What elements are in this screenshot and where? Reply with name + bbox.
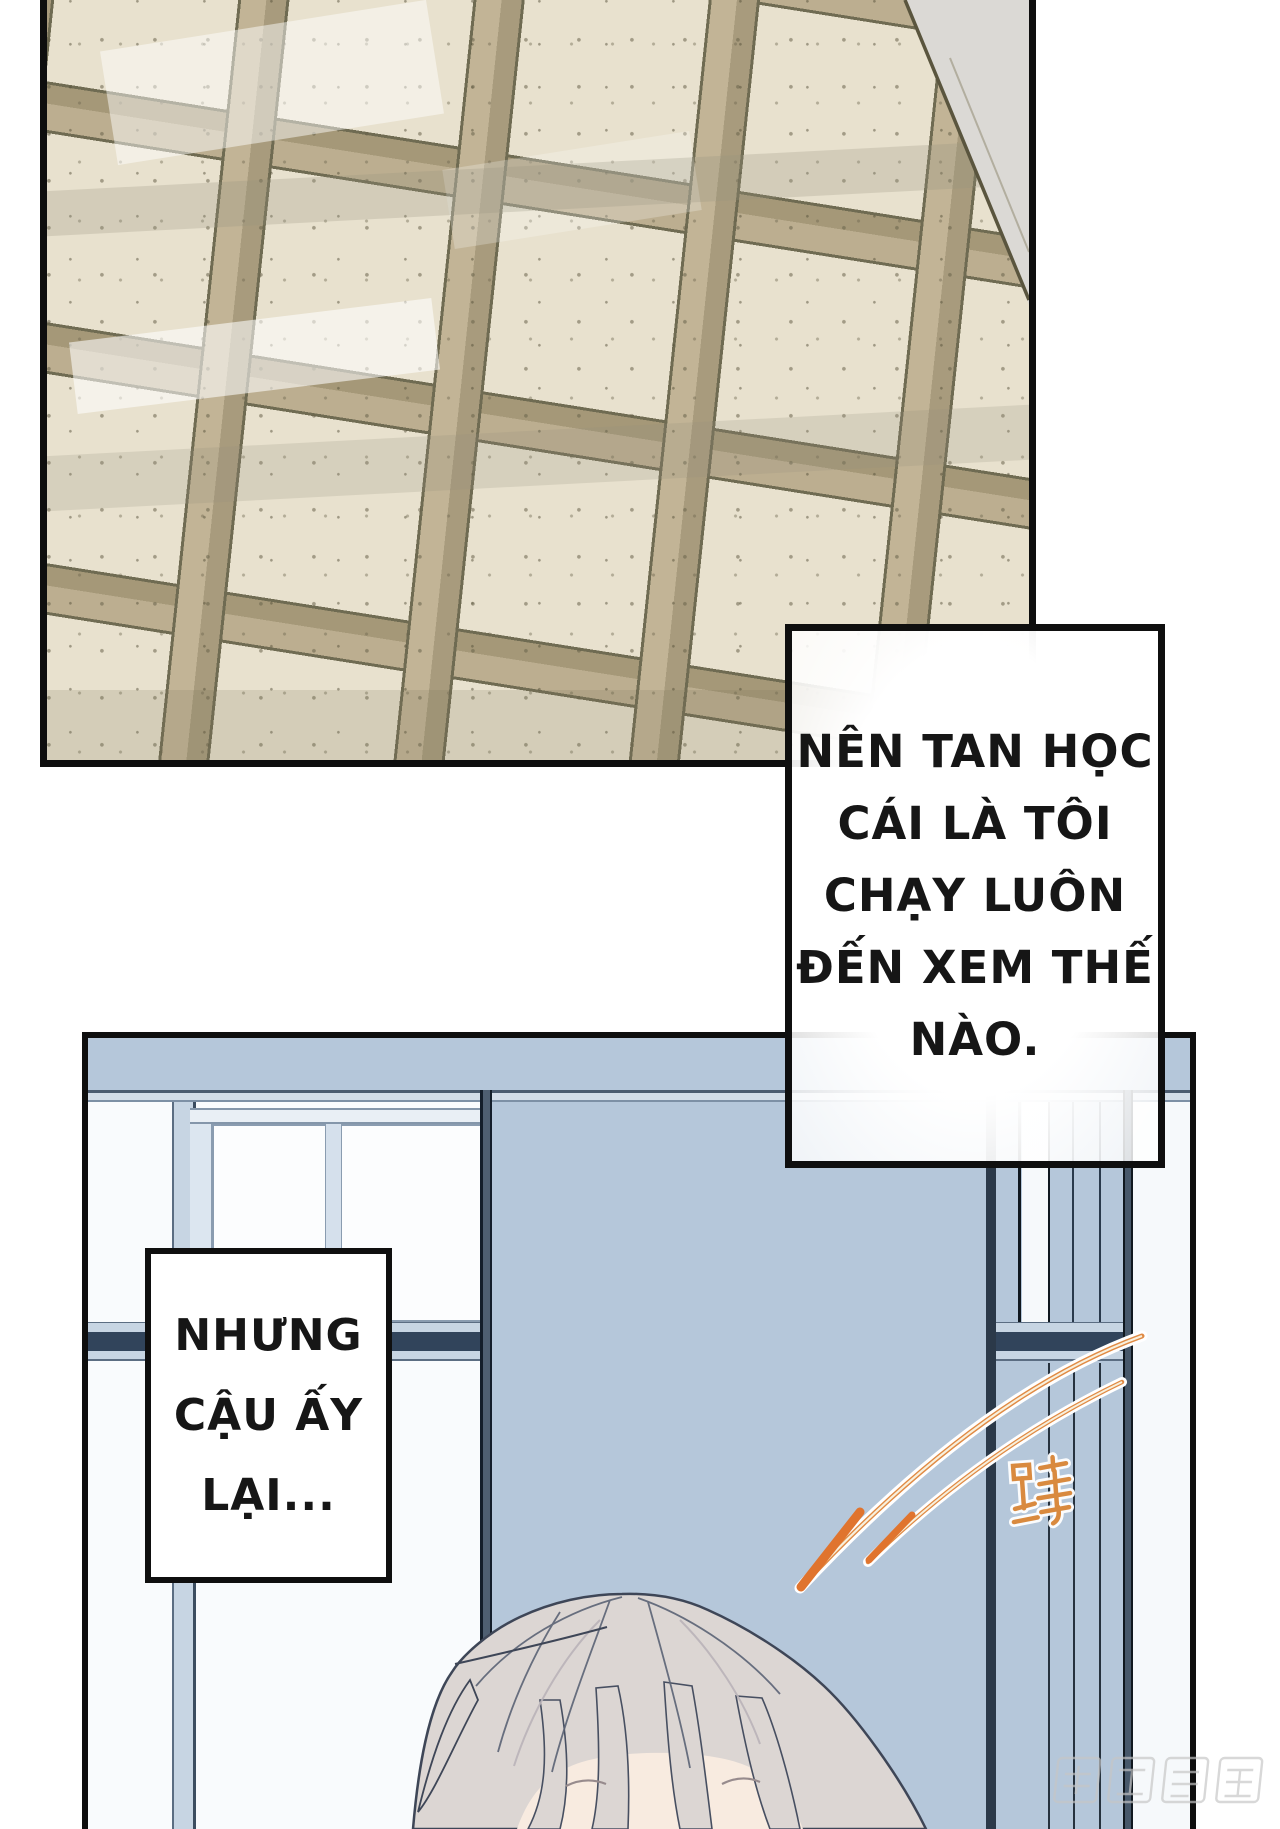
narration-line: CÁI LÀ TÔI xyxy=(837,788,1112,860)
narration-line: NHƯNG xyxy=(174,1296,362,1376)
publisher-watermark xyxy=(1046,1744,1268,1820)
narration-line: ĐẾN XEM THẾ xyxy=(796,932,1154,1004)
narration-line: CHẠY LUÔN xyxy=(824,860,1126,932)
narration-line: CẬU ẤY xyxy=(174,1376,363,1456)
window-mullion-dark xyxy=(986,1090,996,1829)
frame-slate-bar xyxy=(1123,1090,1133,1829)
inner-window-top-frame xyxy=(190,1108,484,1124)
narration-box-right: NÊN TAN HỌC CÁI LÀ TÔI CHẠY LUÔN ĐẾN XEM… xyxy=(785,624,1165,1168)
window-rail-navy xyxy=(996,1332,1133,1351)
narration-line: NÀO. xyxy=(910,1004,1041,1076)
character-head xyxy=(400,1583,945,1829)
narration-line: LẠI... xyxy=(201,1456,336,1536)
narration-line: NÊN TAN HỌC xyxy=(796,716,1153,788)
narration-box-left: NHƯNG CẬU ẤY LẠI... xyxy=(145,1248,392,1583)
frame-white-column xyxy=(1133,1102,1190,1829)
comic-page: NÊN TAN HỌC CÁI LÀ TÔI CHẠY LUÔN ĐẾN XEM… xyxy=(0,0,1280,1829)
